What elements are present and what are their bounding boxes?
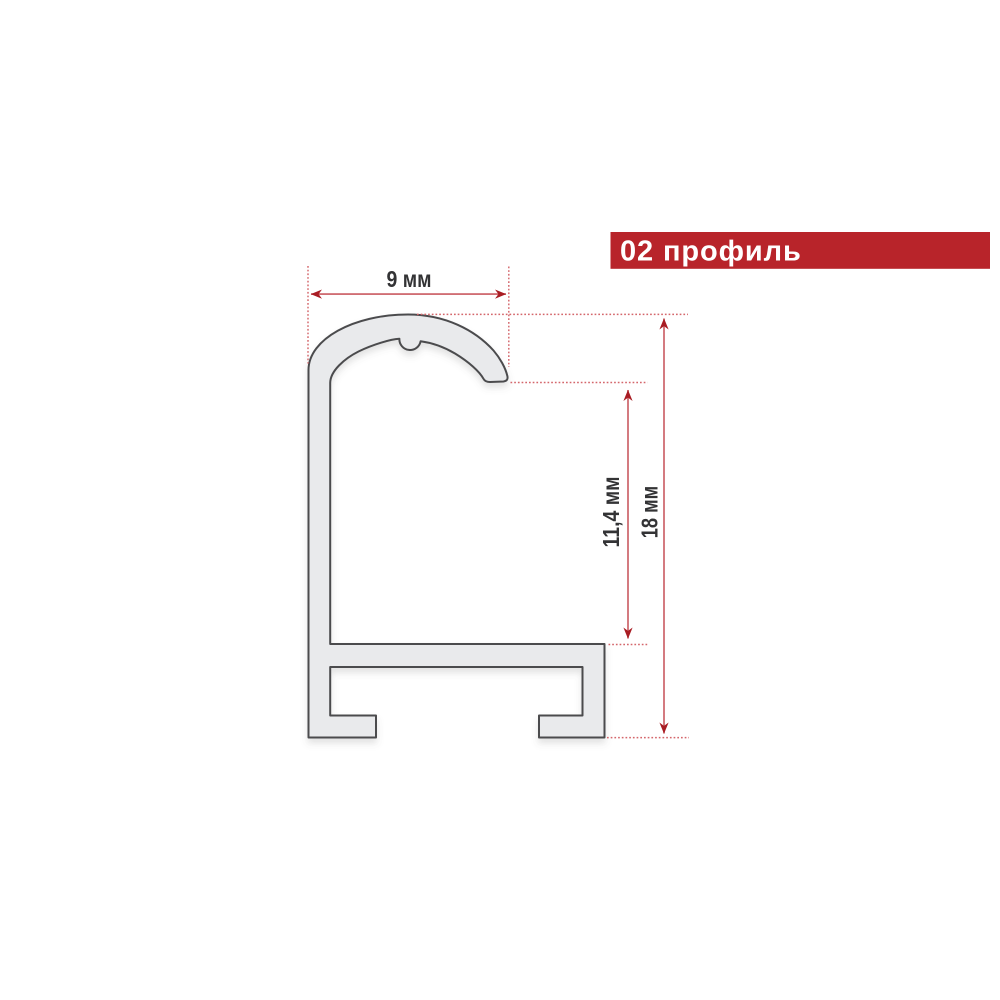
svg-text:11,4 мм: 11,4 мм bbox=[598, 477, 624, 548]
svg-text:02 профиль: 02 профиль bbox=[620, 236, 802, 268]
svg-text:18 мм: 18 мм bbox=[637, 486, 663, 539]
svg-text:9 мм: 9 мм bbox=[387, 266, 432, 292]
